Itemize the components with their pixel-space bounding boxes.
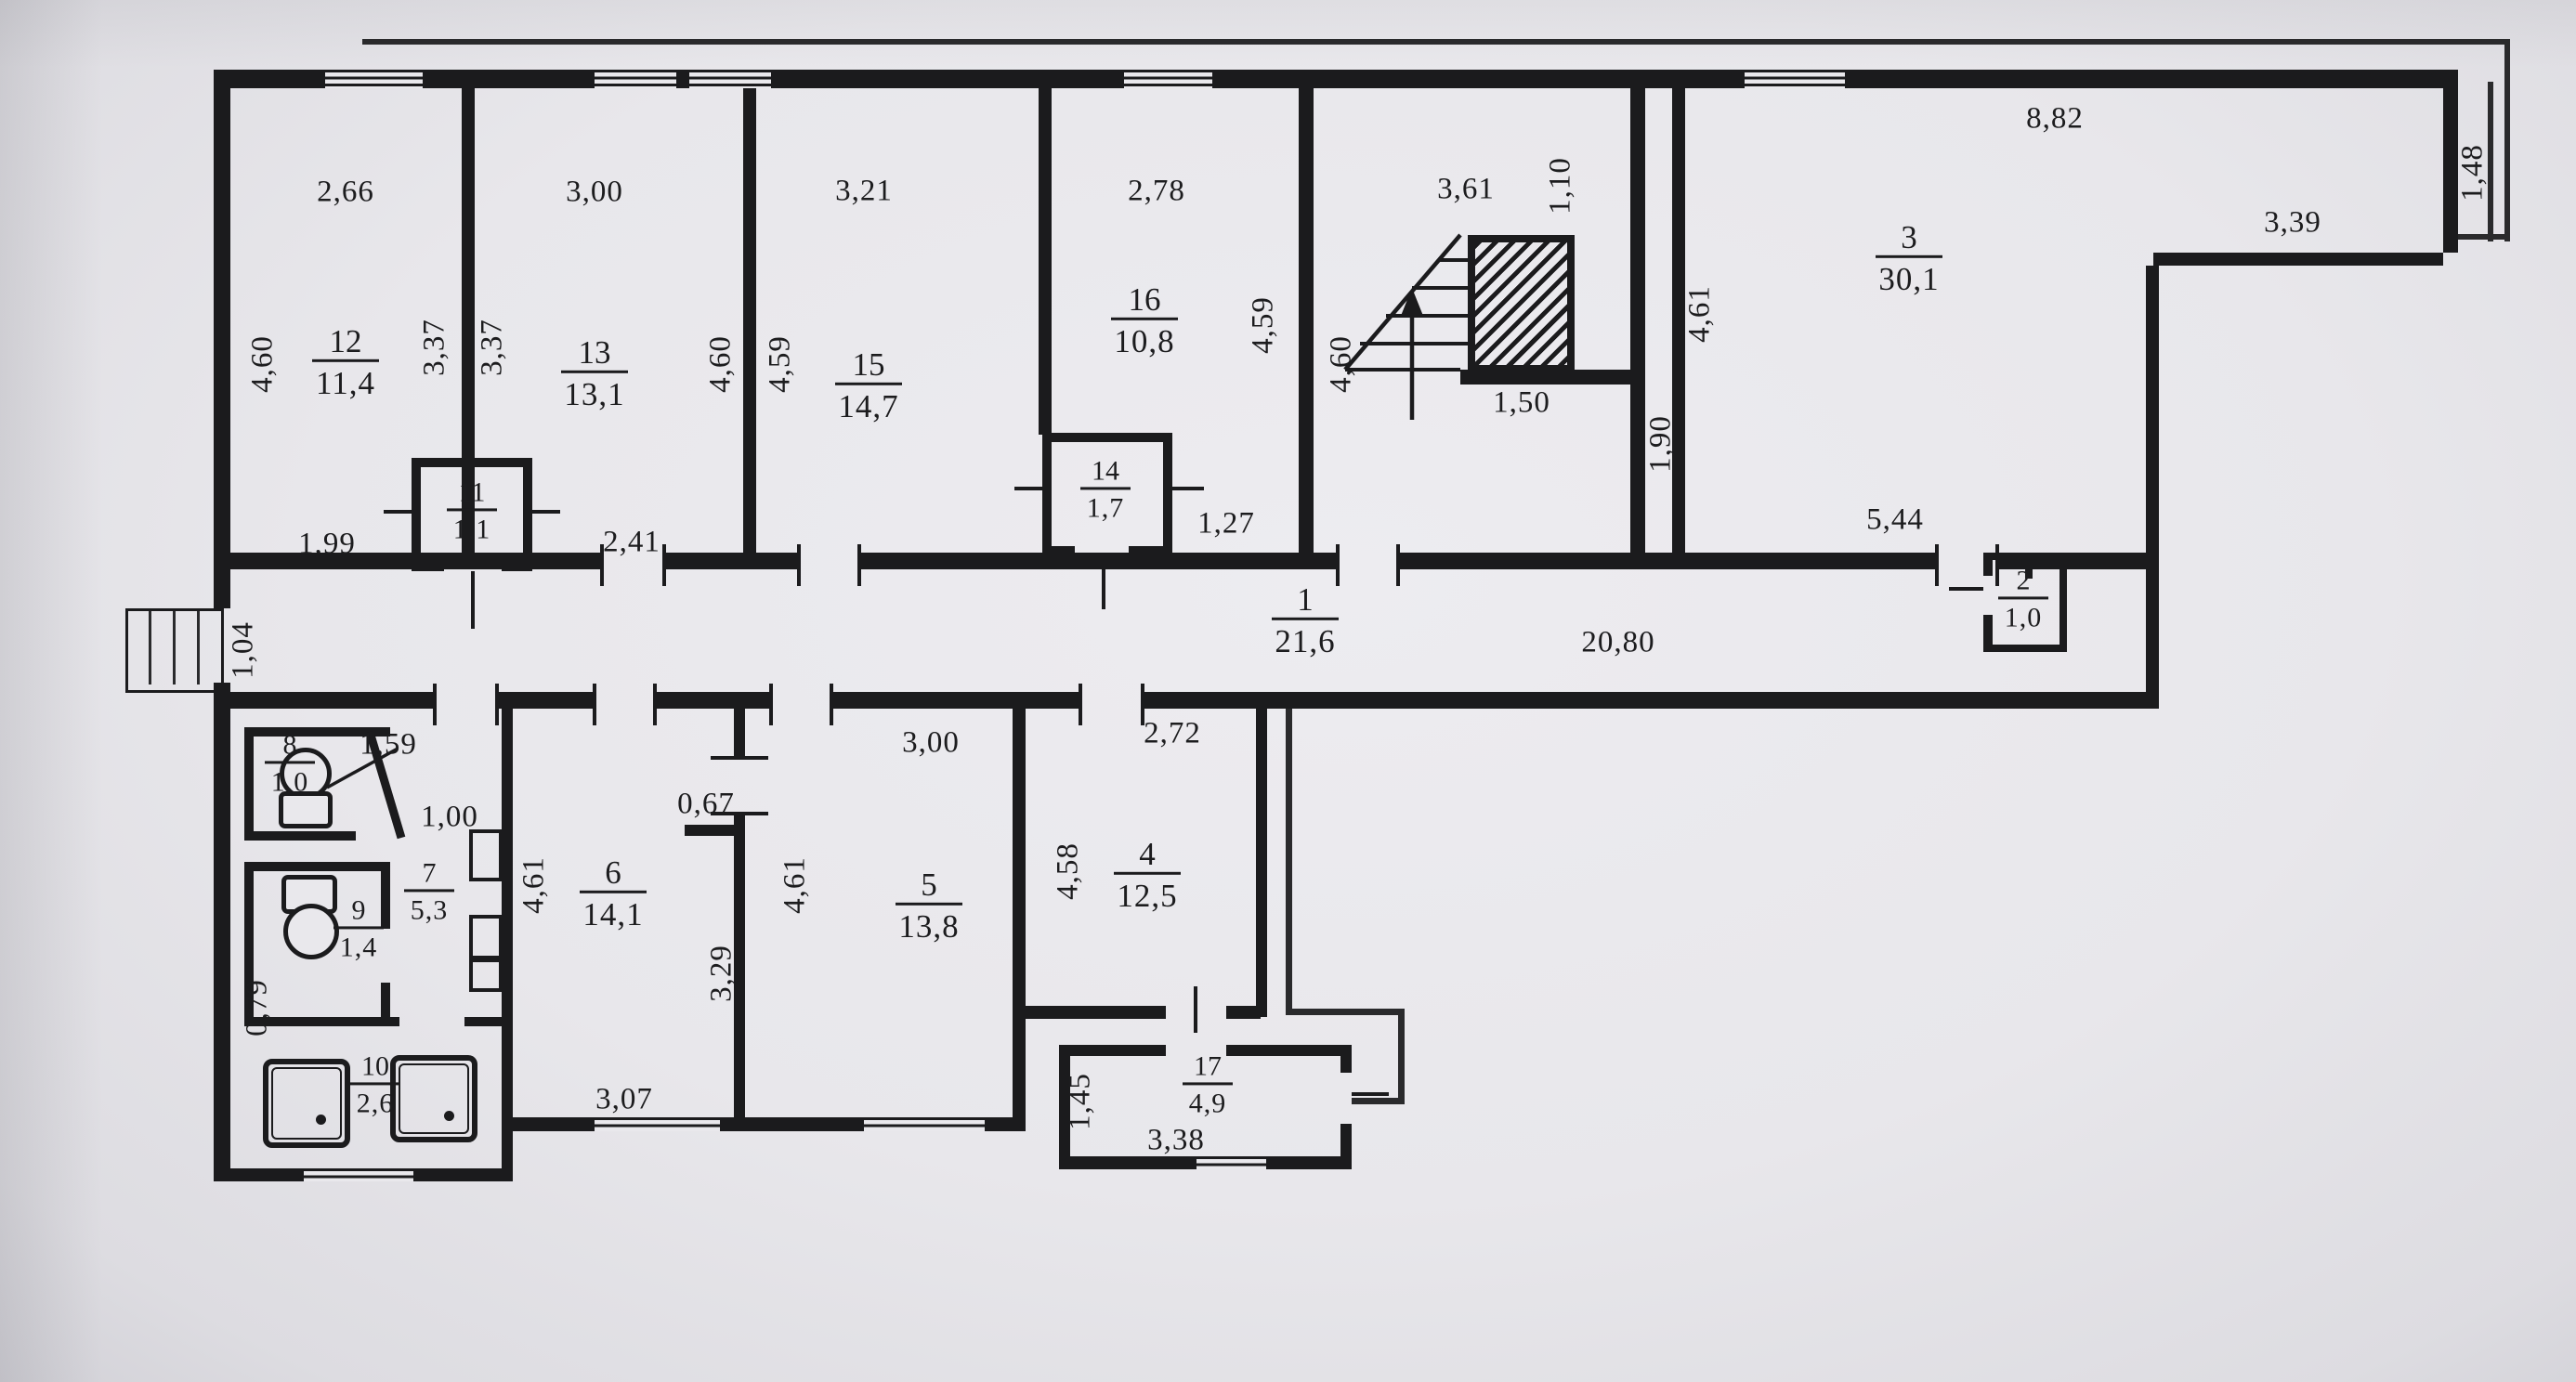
room-label-13: 1313,1 <box>561 334 628 412</box>
dimension-label: 3,37 <box>476 319 510 376</box>
room-area: 1,0 <box>271 763 309 798</box>
room-number: 15 <box>835 346 902 385</box>
stair-stringer <box>1345 235 1460 370</box>
dimension-label: 0,67 <box>677 788 735 822</box>
dim-tick <box>1167 487 1204 490</box>
room-label-6: 614,1 <box>580 854 647 932</box>
corridor-south-wall <box>230 692 437 709</box>
room-label-15: 1514,7 <box>835 346 902 424</box>
room-label-3: 330,1 <box>1876 219 1942 297</box>
room-number: 17 <box>1183 1050 1233 1085</box>
door-tick-4-17 <box>1194 986 1197 1033</box>
dimension-label: 3,29 <box>705 945 739 1002</box>
dimension-label: 2,72 <box>1144 717 1201 751</box>
dimension-label: 1,45 <box>1064 1073 1098 1130</box>
window-room12 <box>325 70 423 88</box>
wall-13-15 <box>743 88 756 553</box>
closet14-door-swing <box>1102 555 1105 609</box>
wall-left-outer-upper <box>214 88 230 608</box>
room-area: 13,8 <box>898 906 959 945</box>
stair-tread-3 <box>1386 314 1468 318</box>
room17-door-tick <box>1352 1092 1389 1096</box>
ext-line-v2 <box>1398 1009 1405 1104</box>
corridor-south-wall <box>497 692 595 709</box>
door-jamb <box>653 684 657 725</box>
dimension-label: 3,07 <box>595 1083 653 1117</box>
room17-top <box>1059 1045 1166 1056</box>
dimension-label: 4,60 <box>1325 335 1359 393</box>
closet14-left <box>1042 433 1052 555</box>
dim-tick <box>527 510 560 514</box>
corridor-south-wall <box>655 692 771 709</box>
corridor-north-wall <box>1398 553 1937 569</box>
closet11-bottom <box>412 562 444 571</box>
boundary-line-right-outer <box>2504 39 2510 241</box>
room-label-2: 21,0 <box>1998 565 2048 632</box>
stair-tread-1 <box>1438 258 1468 262</box>
door-jamb <box>830 684 833 725</box>
room-area: 1,7 <box>1087 489 1125 524</box>
room-area: 5,3 <box>411 892 449 926</box>
room-label-16: 1610,8 <box>1111 281 1178 359</box>
room2-bottom <box>1983 645 2067 652</box>
dimension-label: 4,59 <box>1247 296 1281 354</box>
dimension-label: 1,99 <box>298 528 356 562</box>
wall-room3-arm-bottom <box>2153 253 2443 266</box>
wall-room3-east <box>2146 266 2159 709</box>
wall-6-5-upper <box>734 709 745 760</box>
dim-tick <box>1014 487 1048 490</box>
toilet-bowl-room9 <box>283 904 339 959</box>
room-label-11: 111,1 <box>447 476 497 544</box>
sink-left <box>263 1059 350 1148</box>
dimension-label: 5,44 <box>1866 503 1924 538</box>
room-number: 4 <box>1114 836 1181 875</box>
room4-bottom <box>1017 1006 1166 1019</box>
door-jamb <box>1396 544 1400 586</box>
room8-left <box>244 727 254 841</box>
room-number: 6 <box>580 854 647 893</box>
dimension-label: 2,41 <box>603 526 660 560</box>
stair-tread-4 <box>1360 342 1468 345</box>
room8-bottom <box>244 831 356 841</box>
room-number: 10 <box>350 1050 400 1085</box>
closet11-right <box>523 458 532 571</box>
dimension-label: 1,48 <box>2456 144 2491 202</box>
wall-6-5-stub <box>685 825 736 836</box>
closet11-top <box>412 458 532 467</box>
room-label-17: 174,9 <box>1183 1050 1233 1118</box>
dimension-label: 3,61 <box>1437 173 1495 207</box>
radiator <box>469 915 503 959</box>
porch-step-line <box>149 611 151 684</box>
room17-right <box>1340 1045 1352 1073</box>
room-area: 30,1 <box>1878 258 1939 297</box>
closet14-bottom <box>1042 546 1075 555</box>
closet14-bottom <box>1129 546 1172 555</box>
room-number: 14 <box>1080 455 1131 489</box>
door-jamb <box>662 544 666 586</box>
dimension-label: 1,04 <box>227 621 261 679</box>
boundary-line-connector <box>2452 234 2508 240</box>
dimension-label: 4,61 <box>1683 285 1718 343</box>
room-area: 14,7 <box>838 385 898 424</box>
room-area: 14,1 <box>582 893 643 932</box>
room-number: 13 <box>561 334 628 373</box>
door-jamb <box>433 684 437 725</box>
dimension-label: 4,61 <box>517 856 552 914</box>
door-tick-6-5 <box>711 756 768 760</box>
corridor-north-wall <box>859 553 1338 569</box>
door-jamb <box>1079 684 1082 725</box>
room2-left <box>1983 553 1993 576</box>
room-number: 16 <box>1111 281 1178 320</box>
south-wall-util <box>413 1168 513 1181</box>
stair-tread-2 <box>1412 286 1468 290</box>
sink-drain <box>316 1115 326 1125</box>
window-room6 <box>595 1117 720 1131</box>
dimension-label: 4,60 <box>704 335 739 393</box>
wall-stair-right <box>1630 88 1645 553</box>
floor-plan-sheet: 1211,41313,11514,71610,8330,1111,1141,71… <box>0 0 2576 1382</box>
dimension-label: 1,10 <box>1544 157 1578 215</box>
dimension-label: 1,00 <box>421 801 478 835</box>
door-jamb <box>769 684 773 725</box>
door-jamb <box>593 684 596 725</box>
door-jamb <box>857 544 861 586</box>
room-label-12: 1211,4 <box>312 323 379 401</box>
room-area: 10,8 <box>1114 320 1174 359</box>
window-room5 <box>864 1117 985 1131</box>
dimension-label: 1,90 <box>1644 415 1679 473</box>
wall-4-right <box>1256 709 1267 1017</box>
south-wall-65 <box>985 1117 1026 1131</box>
closet11-left <box>412 458 421 571</box>
room-label-4: 412,5 <box>1114 836 1181 914</box>
door-jamb <box>495 684 499 725</box>
dimension-label: 4,60 <box>246 335 281 393</box>
south-wall-65 <box>720 1117 864 1131</box>
dimension-label: 3,39 <box>2264 206 2321 241</box>
room-number: 7 <box>404 857 454 892</box>
room-number: 1 <box>1272 581 1339 620</box>
dimension-label: 2,66 <box>317 176 374 210</box>
dimension-label: 2,78 <box>1128 175 1185 209</box>
closet14-right <box>1163 433 1172 555</box>
room-area: 1,1 <box>453 511 491 545</box>
window-room3 <box>1745 70 1845 88</box>
corridor-north-wall <box>664 553 799 569</box>
dimension-label: 4,59 <box>764 335 798 393</box>
closet11-bottom <box>502 562 532 571</box>
room-label-9: 91,4 <box>333 894 384 962</box>
room-number: 2 <box>1998 565 2048 599</box>
wall-left-outer-lower <box>214 683 230 1181</box>
dimension-label: 1,50 <box>1493 386 1550 421</box>
room-number: 12 <box>312 323 379 362</box>
elevator-shaft <box>1468 235 1575 372</box>
room-label-10: 102,6 <box>350 1050 400 1118</box>
room-number: 11 <box>447 476 497 511</box>
corridor-south-wall <box>831 692 1082 709</box>
room-number: 8 <box>265 729 315 763</box>
dimension-label: 1,27 <box>1197 507 1255 541</box>
wall-5-4 <box>1013 709 1026 1128</box>
window-room13-a <box>595 70 676 88</box>
door-jamb <box>1336 544 1340 586</box>
stair-bottom-wall <box>1460 370 1630 385</box>
dimension-label: 3,21 <box>835 175 893 209</box>
room-number: 3 <box>1876 219 1942 258</box>
room4-bottom <box>1226 1006 1261 1019</box>
room-label-5: 513,8 <box>896 867 962 945</box>
ext-line-h2 <box>1352 1098 1405 1104</box>
south-wall-util <box>214 1168 304 1181</box>
door-jamb <box>797 544 801 586</box>
dim-tick <box>384 510 417 514</box>
dimension-label: 3,00 <box>566 176 623 210</box>
wall-util-6 <box>502 709 513 1181</box>
dimension-label: 20,80 <box>1581 626 1654 660</box>
sink-drain <box>444 1111 454 1121</box>
room-area: 4,9 <box>1189 1085 1227 1119</box>
dimension-label: 3,37 <box>418 319 452 376</box>
room-area: 1,0 <box>2005 599 2043 633</box>
room-number: 9 <box>333 894 384 929</box>
room-area: 21,6 <box>1275 620 1335 659</box>
door-jamb <box>1935 544 1939 586</box>
dimension-label: 4,61 <box>778 856 813 914</box>
dimension-label: 3,38 <box>1147 1124 1205 1158</box>
porch-step-line <box>197 611 200 684</box>
wall-15-16 <box>1039 88 1052 435</box>
room-label-7: 75,3 <box>404 857 454 925</box>
sink-right <box>390 1055 477 1142</box>
closet11-door-swing <box>471 571 475 629</box>
radiator <box>469 958 503 992</box>
room2-door-tick <box>1949 587 1983 591</box>
south-wall-65 <box>502 1117 595 1131</box>
stair-direction-arrow <box>1401 288 1423 316</box>
porch-step-line <box>173 611 176 684</box>
room9-top <box>244 862 390 871</box>
room-area: 12,5 <box>1117 875 1177 914</box>
room-area: 1,4 <box>340 929 378 963</box>
room17-top <box>1226 1045 1352 1056</box>
room-area: 13,1 <box>564 373 624 412</box>
room2-right <box>2059 553 2067 652</box>
wall-16-stair <box>1299 88 1314 553</box>
window-room13-b <box>689 70 771 88</box>
window-room17 <box>1196 1156 1266 1169</box>
dimension-label: 8,82 <box>2026 102 2084 137</box>
ext-line-v <box>1286 709 1292 1015</box>
room17-bottom <box>1059 1156 1196 1169</box>
wall-7-10 <box>464 1017 513 1026</box>
closet14-top <box>1042 433 1172 442</box>
dimension-label: 4,58 <box>1052 842 1086 900</box>
room-area: 2,6 <box>357 1085 395 1119</box>
room-label-1: 121,6 <box>1272 581 1339 659</box>
window-room16 <box>1124 70 1212 88</box>
dimension-label: 0,79 <box>241 979 275 1036</box>
ext-line-h <box>1286 1009 1405 1015</box>
wall-top-outer <box>214 70 2458 88</box>
window-room10 <box>304 1168 413 1181</box>
dimension-label: 3,00 <box>902 726 960 761</box>
room-area: 11,4 <box>316 362 375 401</box>
stair-tread-5 <box>1345 368 1460 372</box>
boundary-line-top <box>362 39 2510 45</box>
room-number: 5 <box>896 867 962 906</box>
radiator <box>469 829 503 881</box>
room-label-14: 141,7 <box>1080 455 1131 523</box>
room17-bottom <box>1266 1156 1352 1169</box>
dimension-label: 1,59 <box>360 728 417 763</box>
room-label-8: 81,0 <box>265 729 315 797</box>
corridor-south-wall <box>1143 692 2158 709</box>
